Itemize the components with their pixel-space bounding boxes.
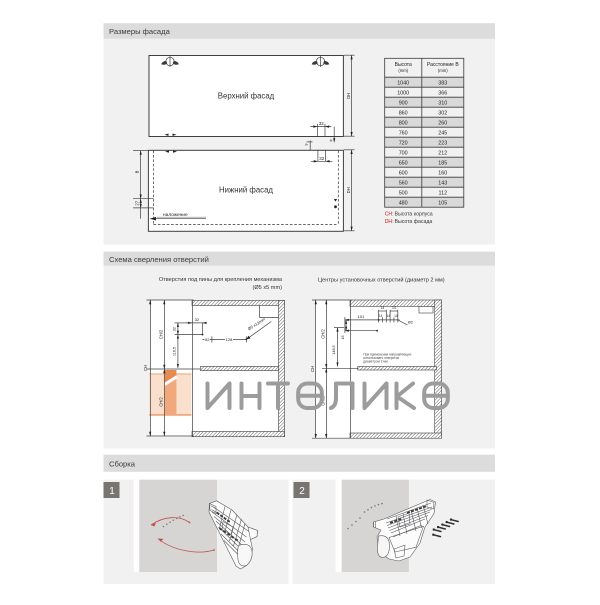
svg-text:Нижний фасад: Нижний фасад [219, 186, 273, 195]
svg-text:1040: 1040 [397, 80, 409, 86]
svg-text:600: 600 [399, 170, 408, 176]
svg-text:Высота корпуса: Высота корпуса [395, 211, 433, 217]
svg-text:CH: CH [310, 366, 315, 372]
svg-text:14: 14 [379, 314, 383, 318]
svg-text:148,5: 148,5 [332, 345, 336, 354]
svg-text:27: 27 [135, 200, 140, 205]
svg-text:в: в [330, 139, 332, 143]
svg-text:32: 32 [172, 326, 177, 331]
svg-text:143: 143 [438, 180, 447, 186]
svg-text:CH:: CH: [385, 211, 394, 217]
svg-text:Высота фасада: Высота фасада [395, 219, 433, 225]
svg-text:CH/2: CH/2 [158, 329, 163, 339]
svg-text:700: 700 [399, 150, 408, 156]
svg-text:14: 14 [380, 306, 384, 310]
svg-text:DH: DH [346, 187, 351, 193]
svg-text:112: 112 [439, 190, 448, 196]
svg-text:Верхний фасад: Верхний фасад [218, 92, 275, 101]
svg-text:760: 760 [399, 130, 408, 136]
svg-text:480: 480 [399, 200, 408, 206]
svg-text:Отверстия под пины для креплен: Отверстия под пины для крепления механиз… [159, 277, 283, 283]
svg-text:245: 245 [438, 130, 447, 136]
svg-text:(Ø5 x5 mm): (Ø5 x5 mm) [252, 285, 282, 291]
svg-text:105: 105 [438, 200, 447, 206]
svg-text:560: 560 [399, 180, 408, 186]
svg-text:CH/2: CH/2 [158, 397, 163, 407]
svg-text:Размеры фасада: Размеры фасада [109, 27, 171, 36]
svg-text:CH: CH [143, 365, 148, 371]
svg-text:32: 32 [319, 156, 324, 161]
svg-text:310: 310 [438, 100, 447, 106]
svg-text:B: B [135, 170, 140, 173]
svg-text:116,5: 116,5 [173, 347, 177, 356]
svg-text:DH: DH [346, 93, 351, 99]
svg-text:32: 32 [319, 121, 324, 126]
svg-text:383: 383 [438, 80, 447, 86]
svg-text:800: 800 [399, 120, 408, 126]
svg-text:500: 500 [399, 190, 408, 196]
svg-text:1: 1 [109, 486, 115, 497]
svg-text:260: 260 [438, 120, 447, 126]
svg-text:128: 128 [226, 337, 233, 342]
svg-text:16: 16 [341, 335, 345, 339]
svg-text:9: 9 [304, 143, 308, 145]
svg-text:2: 2 [299, 486, 305, 497]
svg-text:223: 223 [438, 140, 447, 146]
svg-text:366: 366 [438, 90, 447, 96]
svg-text:32: 32 [195, 317, 200, 322]
svg-text:14: 14 [386, 314, 390, 318]
svg-text:212: 212 [438, 150, 447, 156]
svg-text:185: 185 [438, 160, 447, 166]
svg-text:14: 14 [392, 306, 396, 310]
svg-text:Ø2: Ø2 [408, 321, 413, 325]
svg-text:720: 720 [399, 140, 408, 146]
svg-text:Сборка: Сборка [109, 460, 136, 469]
svg-text:101: 101 [358, 314, 365, 319]
svg-text:52: 52 [205, 337, 210, 342]
svg-text:диаметром 2 мм.: диаметром 2 мм. [363, 360, 388, 364]
svg-text:900: 900 [399, 100, 408, 106]
svg-text:1000: 1000 [397, 90, 409, 96]
svg-text:302: 302 [438, 110, 447, 116]
svg-text:(mm): (mm) [398, 68, 408, 73]
svg-text:860: 860 [399, 110, 408, 116]
svg-text:14: 14 [394, 314, 398, 318]
svg-text:Схема сверления отверстий: Схема сверления отверстий [109, 255, 209, 264]
svg-text:650: 650 [399, 160, 408, 166]
svg-text:Центры установочных отверстий: Центры установочных отверстий (диаметр 2… [318, 277, 445, 284]
svg-text:160: 160 [438, 170, 447, 176]
svg-text:(mm): (mm) [438, 68, 448, 73]
svg-text:DH:: DH: [385, 219, 394, 225]
svg-text:CH/2: CH/2 [320, 329, 325, 339]
